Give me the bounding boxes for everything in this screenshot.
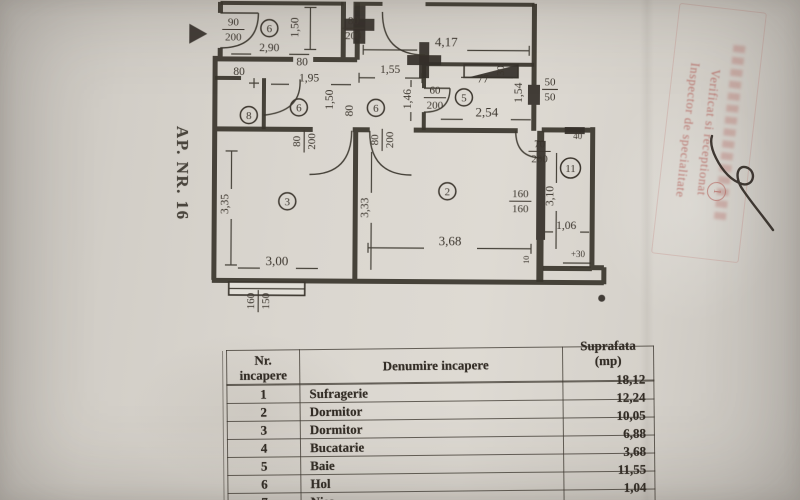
scanned-floorplan-page: 6686523119020080200602007020016016050508… <box>0 0 800 500</box>
signature <box>0 0 800 500</box>
